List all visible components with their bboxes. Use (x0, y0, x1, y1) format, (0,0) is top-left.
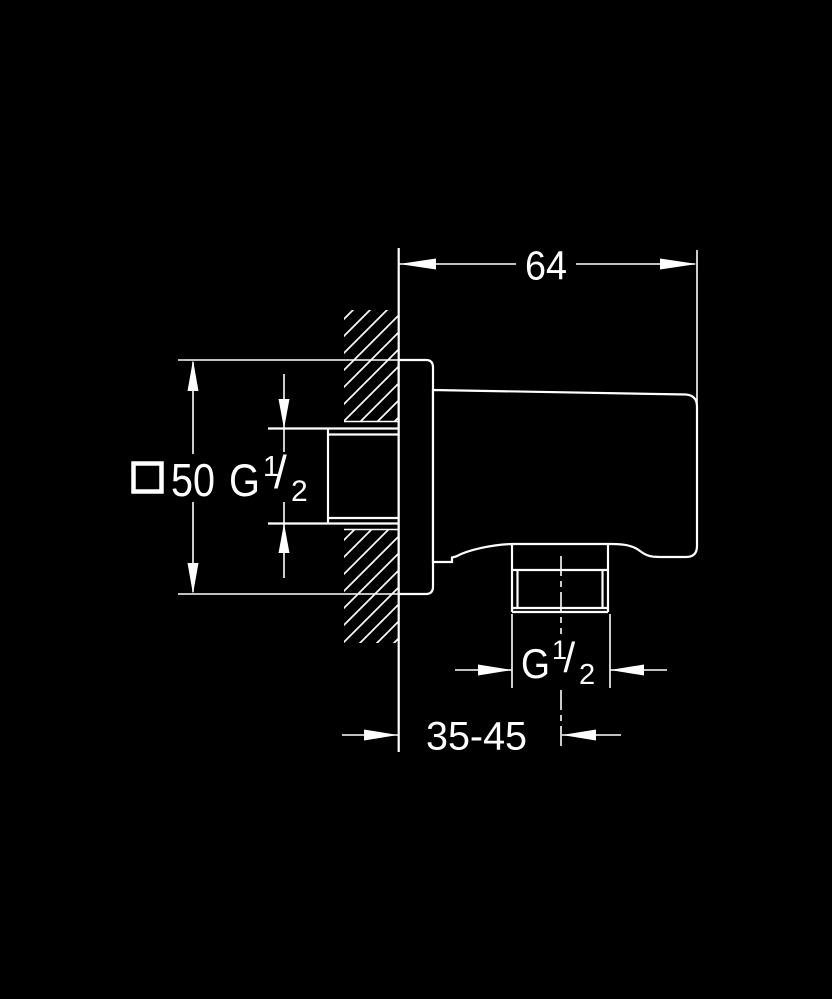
technical-drawing-page: 64 50 G 1 / 2 G 1 / 2 (0, 0, 832, 999)
dimension-value-35-45: 35-45 (426, 715, 527, 759)
body-outline (433, 390, 697, 562)
thread-label-slash: / (274, 446, 287, 498)
escutcheon-plate (399, 360, 433, 594)
thread-label-denominator: 2 (291, 475, 308, 508)
shower-outlet-elbow-drawing: 64 50 G 1 / 2 G 1 / 2 (0, 0, 832, 999)
thread-label-g: G (521, 640, 550, 687)
thread-label-slash: / (564, 634, 576, 681)
wall-hatching-upper (344, 310, 398, 421)
wall-hatching-lower (344, 530, 398, 643)
thread-label-g: G (229, 455, 260, 506)
dimension-value-64: 64 (525, 243, 567, 289)
thread-label-denominator: 2 (579, 659, 595, 691)
dimension-value-50: 50 (171, 454, 215, 506)
